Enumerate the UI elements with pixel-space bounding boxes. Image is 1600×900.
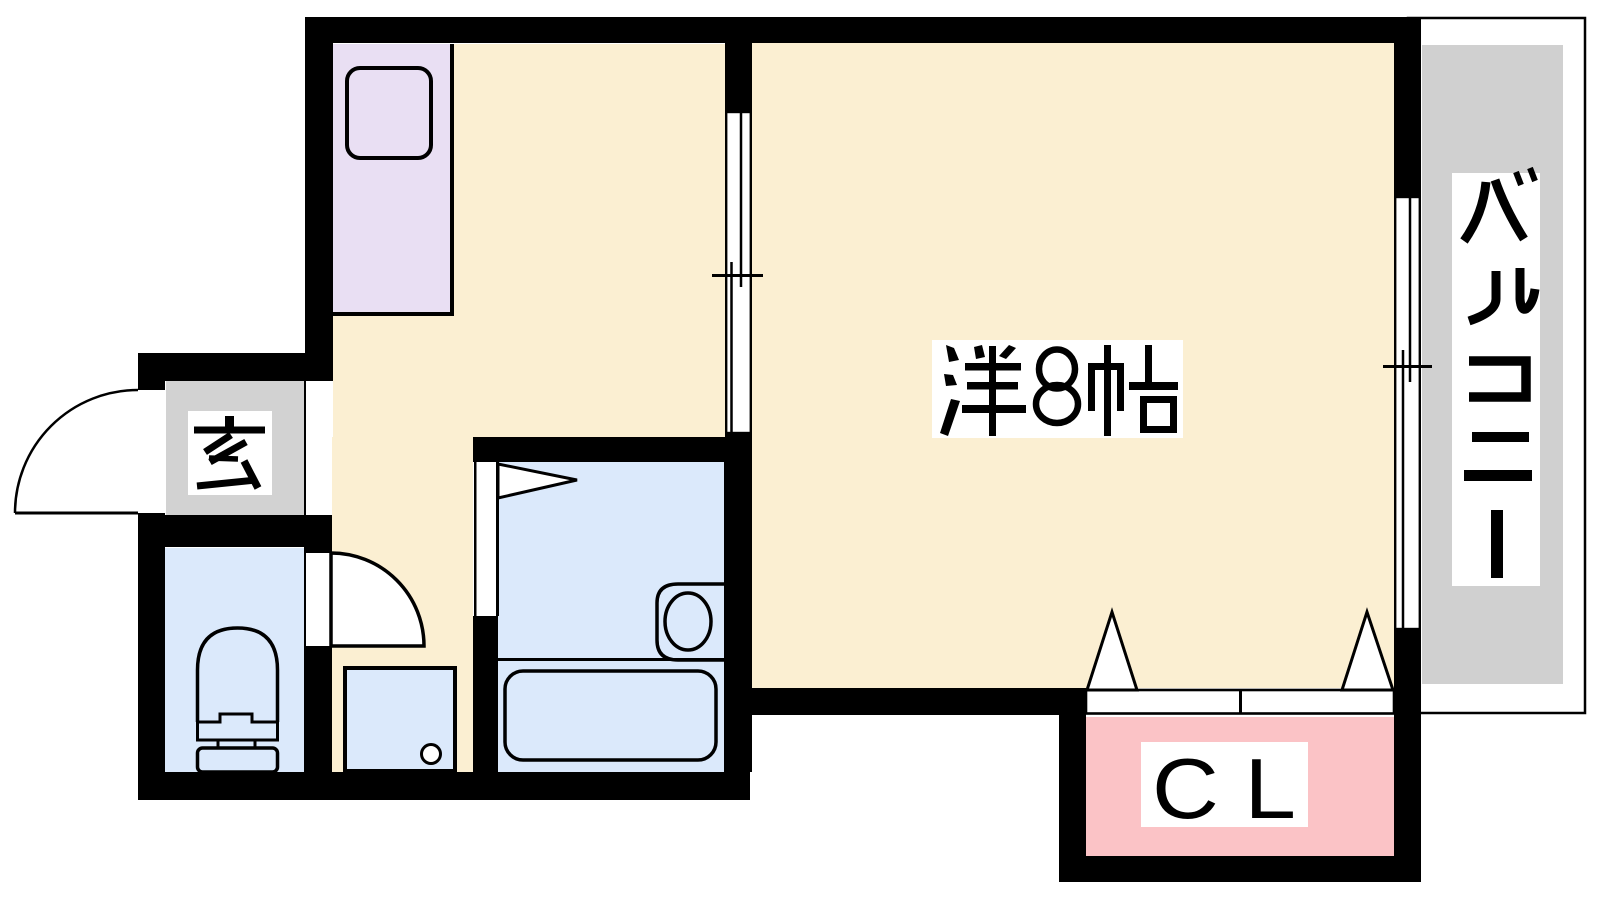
svg-text:C L: C L — [1152, 742, 1296, 837]
